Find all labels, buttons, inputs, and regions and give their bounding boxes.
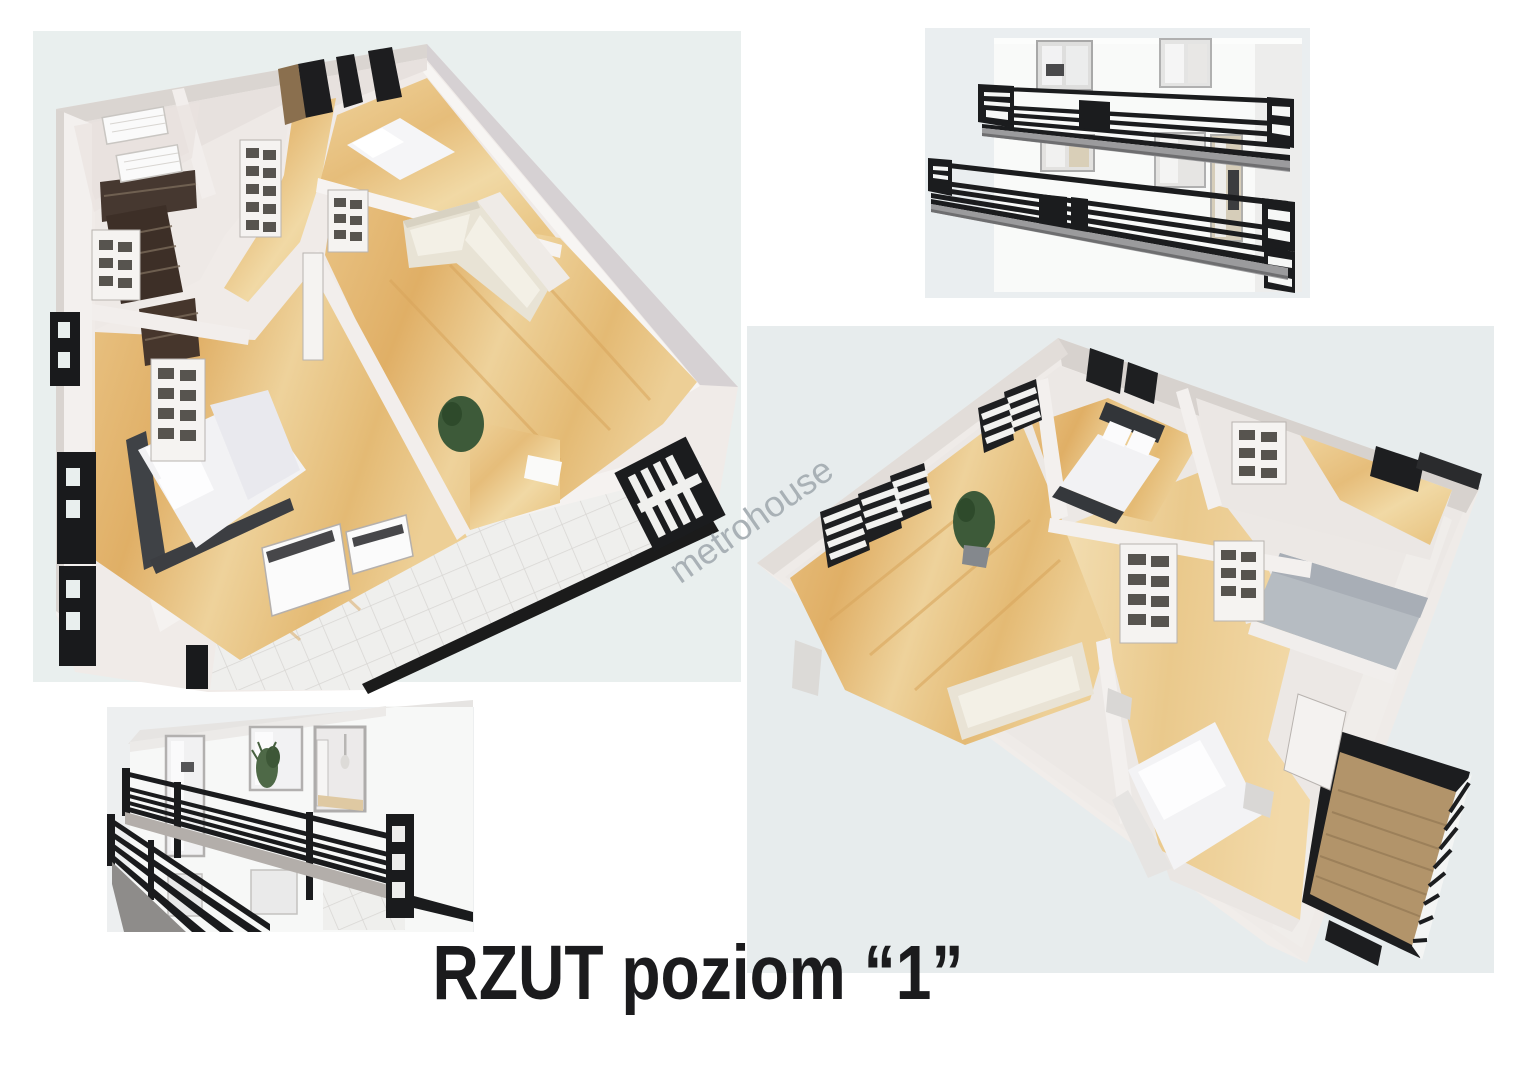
svg-text:RZUT poziom “1”: RZUT poziom “1”: [433, 930, 964, 1016]
